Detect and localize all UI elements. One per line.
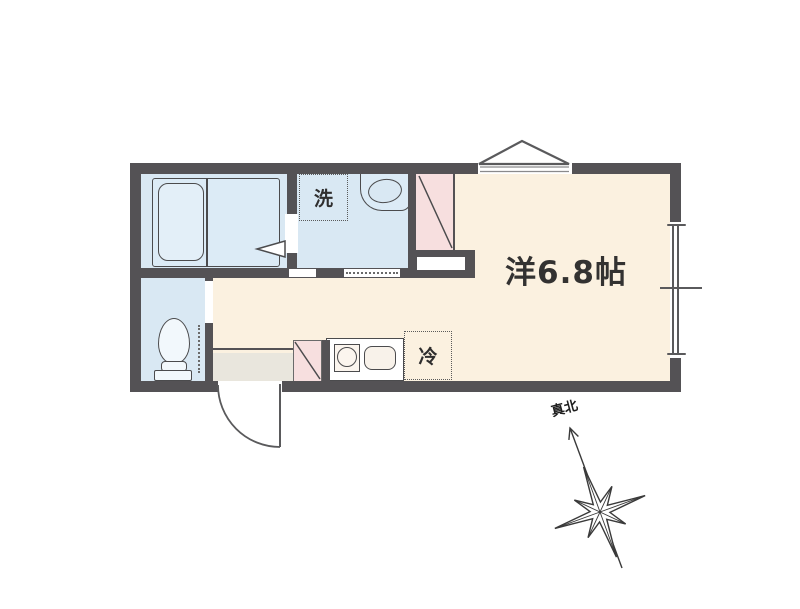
bay-window-triangle <box>479 141 569 164</box>
compass-rose <box>538 428 661 574</box>
entrance-door-swing-fill <box>218 385 280 447</box>
vector-overlay <box>0 0 800 609</box>
main-room-label: 洋6.8帖 <box>460 250 672 288</box>
bathroom-door-arrow-icon <box>257 241 285 257</box>
floor-plan-canvas: 洗 冷 <box>0 0 800 609</box>
washroom-door-swing-line <box>419 176 452 248</box>
compass-star-inner-lines <box>538 450 661 573</box>
kitchen-door-swing-line <box>295 342 320 379</box>
